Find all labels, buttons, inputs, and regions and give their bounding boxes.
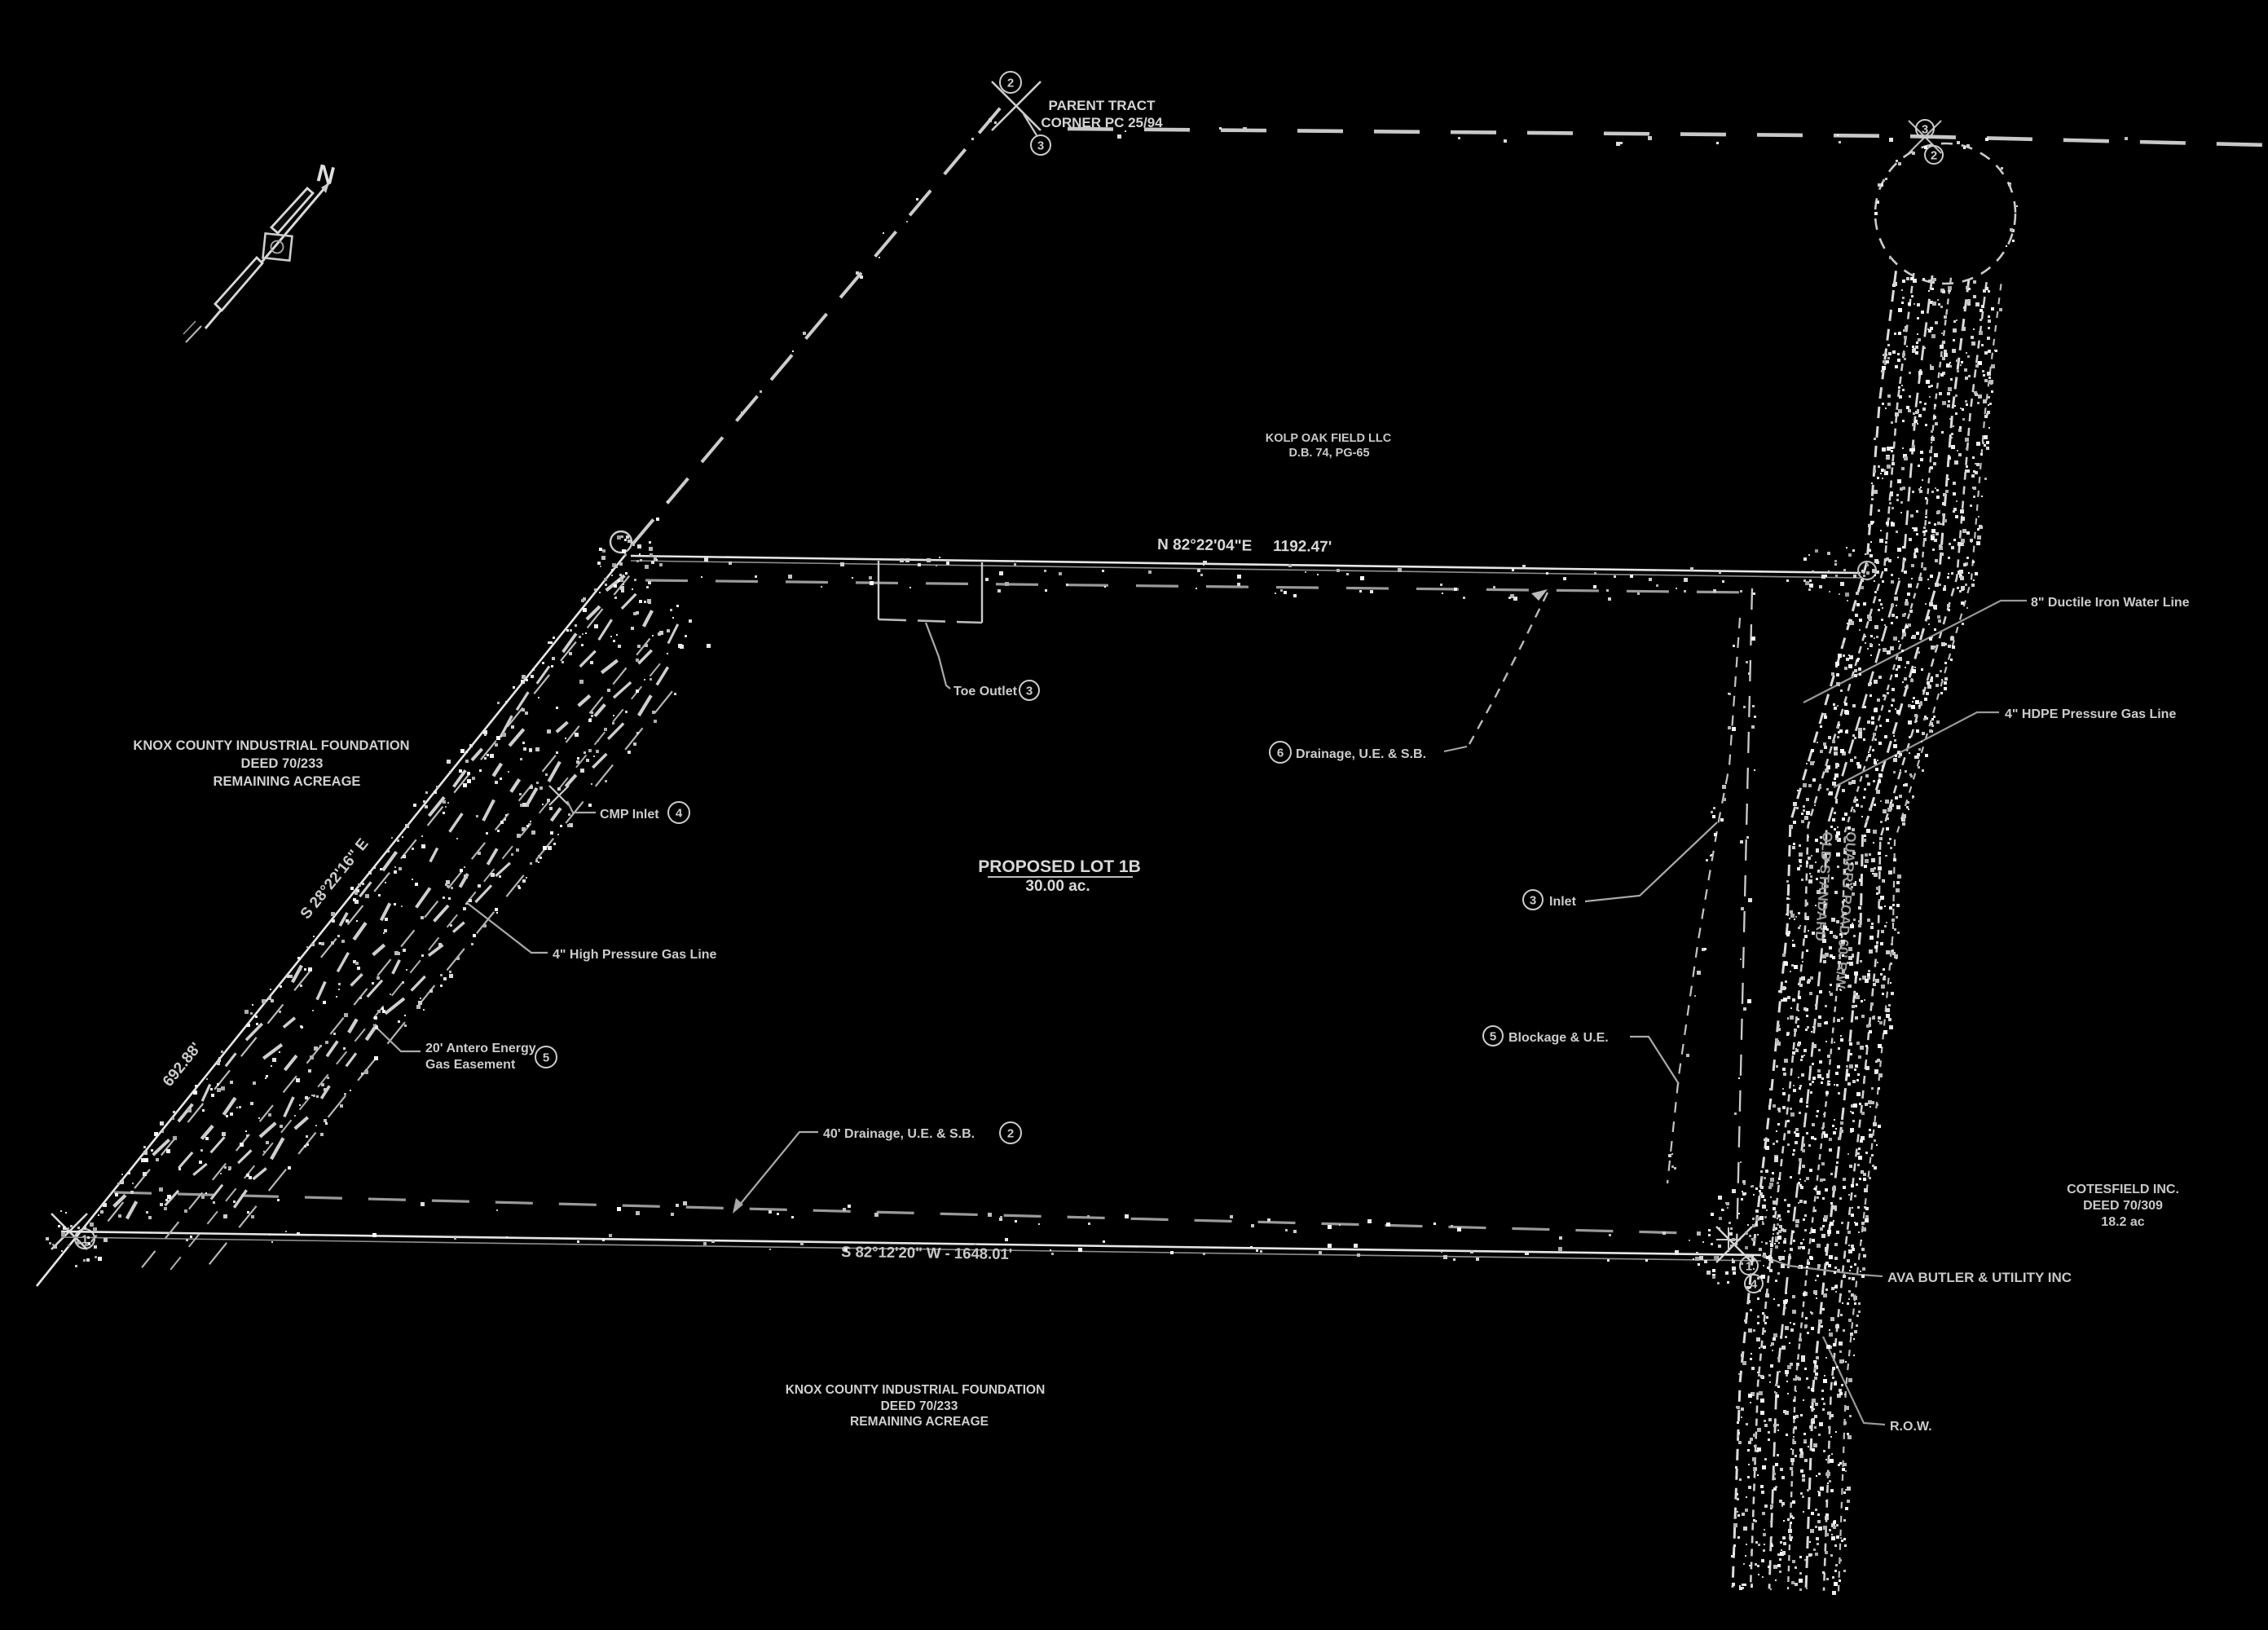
- svg-text:40' Drainage, U.E. & S.B.: 40' Drainage, U.E. & S.B.: [823, 1127, 975, 1141]
- svg-text:COTESFIELD INC.: COTESFIELD INC.: [2067, 1183, 2179, 1196]
- svg-text:5: 5: [1490, 1029, 1496, 1043]
- svg-text:3: 3: [1026, 684, 1033, 698]
- svg-text:R.O.W.: R.O.W.: [1890, 1420, 1932, 1434]
- svg-text:KNOX COUNTY INDUSTRIAL FOUNDAT: KNOX COUNTY INDUSTRIAL FOUNDATION: [133, 738, 409, 753]
- svg-text:REMAINING ACREAGE: REMAINING ACREAGE: [214, 774, 361, 789]
- svg-text:1: 1: [1746, 1259, 1752, 1273]
- svg-text:3: 3: [1037, 139, 1044, 152]
- svg-text:20' Antero Energy: 20' Antero Energy: [425, 1042, 536, 1055]
- svg-text:DEED 70/233: DEED 70/233: [241, 756, 324, 771]
- svg-text:Drainage, U.E. & S.B.: Drainage, U.E. & S.B.: [1296, 747, 1426, 761]
- svg-text:N 82°22'04"E: N 82°22'04"E: [1157, 536, 1252, 555]
- svg-text:Gas Easement: Gas Easement: [425, 1058, 516, 1072]
- svg-text:8" Ductile Iron Water Line: 8" Ductile Iron Water Line: [2031, 596, 2190, 610]
- svg-text:REMAINING ACREAGE: REMAINING ACREAGE: [850, 1415, 989, 1429]
- svg-text:KNOX COUNTY INDUSTRIAL FOUNDAT: KNOX COUNTY INDUSTRIAL FOUNDATION: [786, 1383, 1046, 1397]
- svg-text:S 82°12'20" W - 1648.01': S 82°12'20" W - 1648.01': [841, 1243, 1012, 1262]
- svg-text:PROPOSED LOT 1B: PROPOSED LOT 1B: [978, 857, 1141, 876]
- svg-text:2: 2: [1007, 1126, 1014, 1140]
- svg-text:3: 3: [1530, 893, 1536, 907]
- svg-text:4" High Pressure Gas Line: 4" High Pressure Gas Line: [553, 948, 717, 962]
- svg-text:D.B. 74, PG-65: D.B. 74, PG-65: [1288, 447, 1369, 460]
- svg-text:DEED 70/233: DEED 70/233: [881, 1399, 958, 1413]
- svg-text:KOLP OAK FIELD LLC: KOLP OAK FIELD LLC: [1266, 432, 1392, 445]
- svg-text:2: 2: [1931, 148, 1937, 162]
- svg-text:5: 5: [543, 1051, 549, 1064]
- svg-text:AVA BUTLER & UTILITY INC: AVA BUTLER & UTILITY INC: [1887, 1270, 2072, 1285]
- svg-text:1192.47': 1192.47': [1273, 538, 1332, 556]
- svg-text:CMP Inlet: CMP Inlet: [600, 808, 659, 822]
- svg-text:DEED 70/309: DEED 70/309: [2083, 1199, 2163, 1213]
- svg-text:4: 4: [1751, 1277, 1758, 1291]
- svg-text:PARENT TRACT: PARENT TRACT: [1049, 98, 1156, 113]
- svg-text:3: 3: [1922, 122, 1928, 136]
- svg-text:18.2 ac: 18.2 ac: [2101, 1215, 2144, 1229]
- svg-text:Inlet: Inlet: [1549, 895, 1577, 909]
- svg-text:Blockage & U.E.: Blockage & U.E.: [1508, 1031, 1609, 1045]
- svg-text:Toe Outlet: Toe Outlet: [953, 685, 1018, 698]
- svg-text:2: 2: [1007, 76, 1014, 90]
- svg-text:6: 6: [1277, 746, 1284, 760]
- svg-text:30.00 ac.: 30.00 ac.: [1025, 878, 1090, 895]
- svg-text:4: 4: [676, 806, 683, 820]
- svg-text:4" HDPE Pressure Gas Line: 4" HDPE Pressure Gas Line: [2005, 707, 2176, 721]
